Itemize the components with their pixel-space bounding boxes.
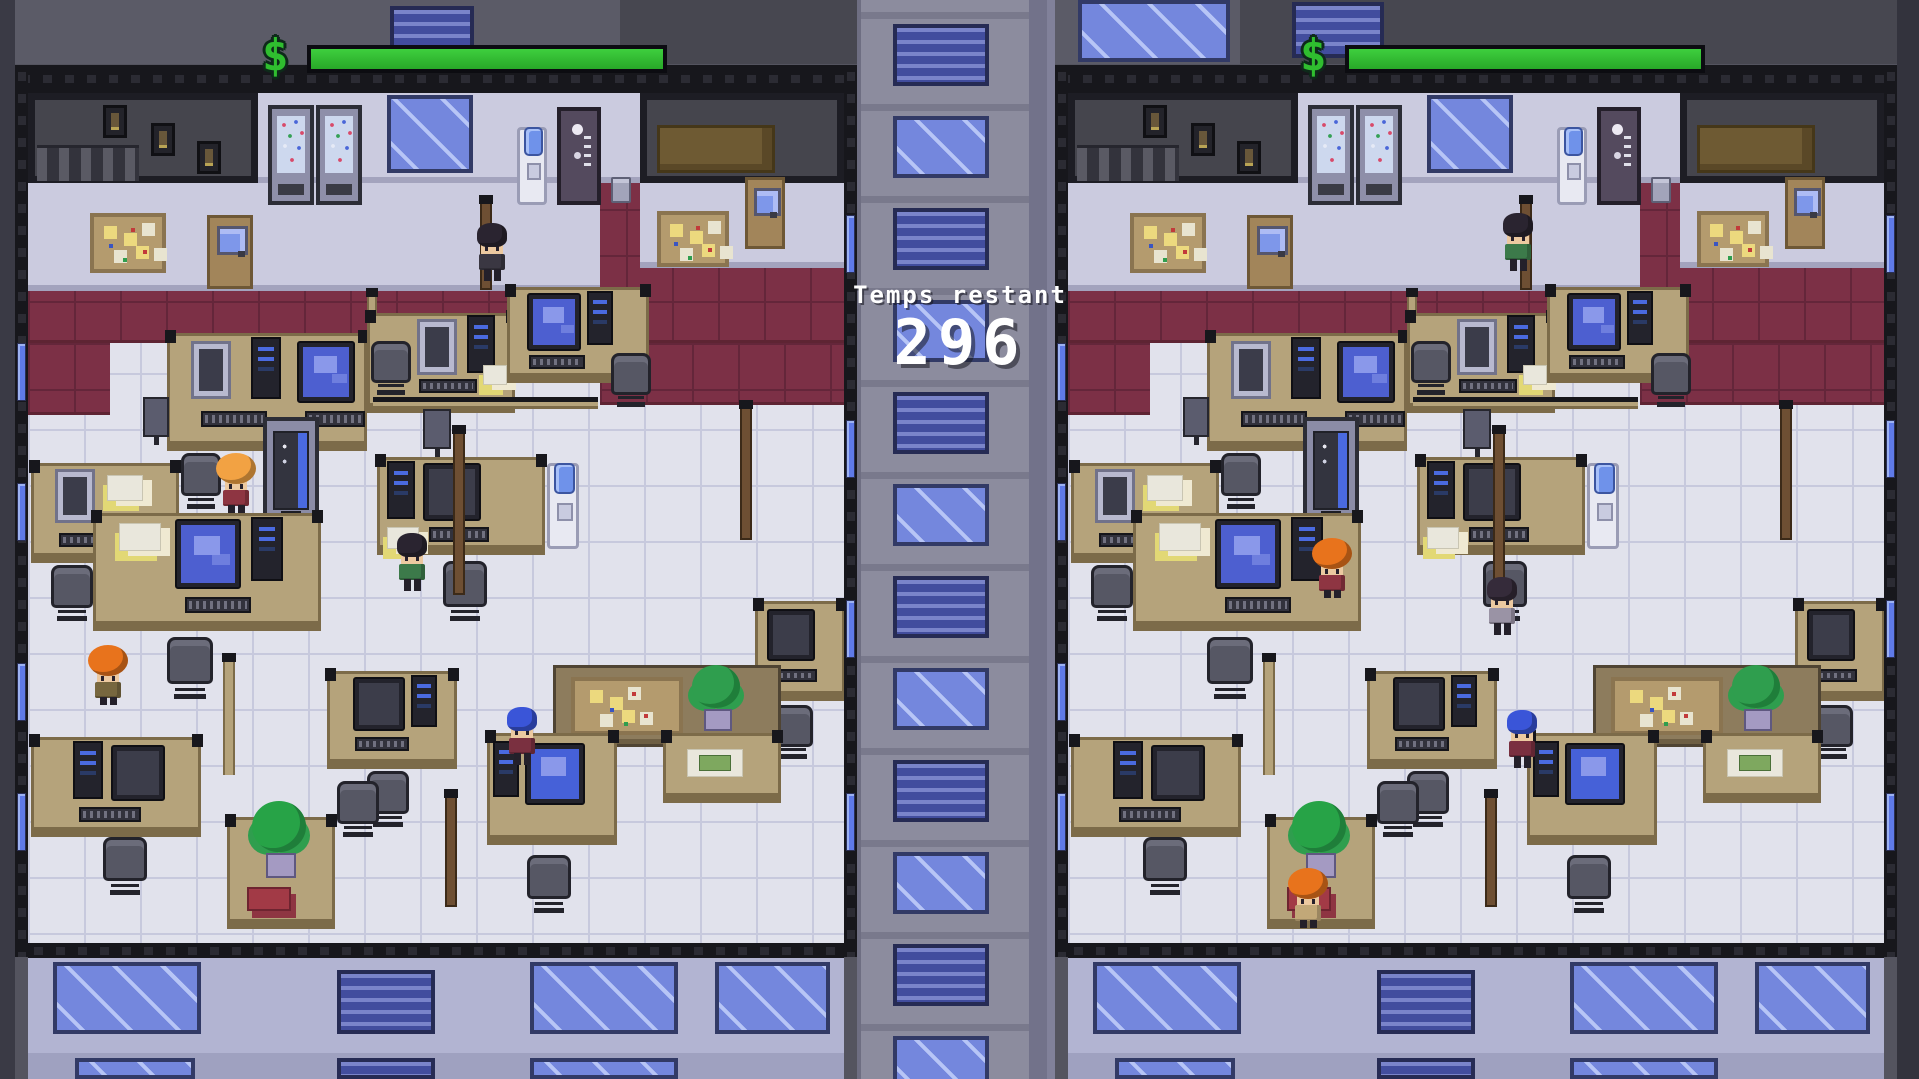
water-cooler[interactable] [517, 127, 547, 205]
cubicle-post [453, 425, 465, 595]
flower-vending-machine[interactable] [1356, 105, 1402, 205]
money-bar-fill [311, 49, 663, 69]
office-chair [103, 837, 147, 897]
office-chair [1221, 453, 1261, 511]
keyboard [1569, 355, 1625, 369]
trash-bin [611, 177, 631, 203]
keyboard [79, 807, 141, 822]
character-body [223, 490, 249, 506]
facade-ledge [857, 12, 1055, 19]
computer-tower [1113, 741, 1143, 799]
trash-bin [1651, 177, 1671, 203]
facade-ledge [857, 932, 1055, 939]
office-chair [1567, 855, 1611, 915]
office-right[interactable] [1055, 65, 1897, 1079]
character-legs [1300, 920, 1307, 928]
cubicle-post [740, 400, 752, 540]
office-chair [1143, 837, 1187, 897]
character-body [1509, 741, 1535, 757]
computer-crt [55, 469, 95, 523]
computer-tower [1291, 337, 1321, 399]
office-left[interactable] [15, 65, 857, 1079]
character-hair [1288, 868, 1328, 899]
money-bar-right [1345, 45, 1705, 73]
wall-window [17, 793, 26, 851]
computer-crt [191, 341, 231, 399]
potted-plant [687, 665, 745, 735]
window [1755, 962, 1870, 1034]
facade-ledge [857, 840, 1055, 847]
cubicle-rail [1263, 655, 1275, 775]
potted-palm [247, 801, 311, 883]
keyboard [185, 597, 251, 613]
character-hair [397, 533, 427, 557]
computer-crt [1095, 469, 1135, 523]
computer-tower [411, 675, 437, 727]
facade-ledge [857, 196, 1055, 203]
computer-monitor [1337, 341, 1395, 403]
keyboard [1119, 807, 1181, 822]
desk-papers [1147, 475, 1183, 501]
window [715, 962, 830, 1034]
water-cooler[interactable] [1587, 463, 1619, 549]
character-hair [1507, 710, 1537, 734]
computer-monitor [1567, 293, 1621, 351]
character-body [1319, 575, 1345, 591]
potted-plant [1727, 665, 1785, 735]
cork-board [1130, 213, 1206, 273]
computer-tower [73, 741, 103, 799]
facade-ledge [857, 1024, 1055, 1031]
character-legs [228, 505, 235, 513]
character-legs [1324, 590, 1331, 598]
desk-papers [1159, 523, 1201, 551]
window [893, 668, 989, 730]
window [1570, 1058, 1718, 1079]
door[interactable] [1247, 215, 1293, 289]
computer-tower [1627, 291, 1653, 345]
character-legs [404, 579, 411, 591]
wall-window [1057, 663, 1066, 721]
character-blue-hair[interactable] [1507, 710, 1537, 768]
computer-tower [387, 461, 415, 519]
wall-window [1886, 420, 1895, 478]
desk-papers [119, 523, 161, 551]
picture-frame [1191, 123, 1215, 156]
flower-vending-machine[interactable] [268, 105, 314, 205]
computer-tower [1427, 461, 1455, 519]
keyboard [419, 379, 477, 393]
storage-shelf [657, 125, 775, 173]
computer-monitor [527, 293, 581, 351]
keyboard [355, 737, 409, 751]
office-chair [1207, 637, 1253, 701]
flower-vending-machine[interactable] [1308, 105, 1354, 205]
character-body [509, 738, 535, 754]
facade-ledge [857, 380, 1055, 387]
office-chair [167, 637, 213, 701]
keyboard [1459, 379, 1517, 393]
computer-monitor [353, 677, 405, 731]
timer-label: Temps restant [760, 281, 1160, 309]
facade-seam [1047, 0, 1055, 1079]
picture-frame [1237, 141, 1261, 174]
keyboard [1395, 737, 1449, 751]
building-divider [857, 0, 1055, 1079]
character-hair [216, 453, 256, 484]
picture-frame [151, 123, 175, 156]
cork-board [90, 213, 166, 273]
cubicle-post [1493, 425, 1505, 595]
cork-board [1697, 211, 1769, 267]
blinds-window [893, 392, 989, 454]
wall-window [1057, 483, 1066, 541]
computer-crt [417, 319, 457, 375]
window [893, 852, 989, 914]
timer-value: 296 [760, 306, 1160, 379]
blinds-window [337, 1058, 435, 1079]
character-body [95, 682, 121, 698]
wall-window [846, 793, 855, 851]
computer-tower [1451, 675, 1477, 727]
window [1078, 0, 1230, 62]
character-legs [100, 697, 107, 705]
window [75, 1058, 195, 1079]
desk-papers [1727, 749, 1783, 777]
character-legs [514, 753, 521, 765]
cork-board [571, 677, 683, 735]
storage-shelf [1697, 125, 1815, 173]
office-chair [1411, 341, 1451, 397]
wall-window [1886, 600, 1895, 658]
computer-tower [587, 291, 613, 345]
wall-window [17, 483, 26, 541]
computer-crt [1231, 341, 1271, 399]
cubicle-rail [223, 655, 235, 775]
desk-papers [1523, 365, 1547, 385]
keyboard [529, 355, 585, 369]
computer-monitor [297, 341, 355, 403]
door[interactable] [1785, 177, 1825, 249]
cubicle-post [1780, 400, 1792, 540]
facade-ledge [857, 472, 1055, 479]
facade-ledge [857, 748, 1055, 755]
computer-monitor [423, 463, 481, 521]
blinds-window [893, 576, 989, 638]
money-icon-right: $ [1300, 34, 1327, 78]
wall-window [846, 420, 855, 478]
cubicle-post [445, 789, 457, 907]
wall-window [1057, 793, 1066, 851]
office-chair [181, 453, 221, 511]
character-hair [477, 223, 507, 247]
window [53, 962, 201, 1034]
red-binder [247, 887, 291, 911]
steel-beam [1068, 943, 1884, 958]
cubicle-rail [373, 397, 598, 409]
cork-board [657, 211, 729, 267]
facade-ledge [857, 104, 1055, 111]
blinds-window [1377, 970, 1475, 1034]
character-orange-left[interactable] [93, 645, 123, 703]
blinds-window [893, 208, 989, 270]
wall-window [846, 215, 855, 273]
computer-tower [251, 337, 281, 399]
office-chair [527, 855, 571, 915]
character-hair [1312, 538, 1352, 569]
cork-board [1611, 677, 1723, 735]
water-cooler[interactable] [1557, 127, 1587, 205]
steel-beam [28, 943, 844, 958]
character-hair [1503, 213, 1533, 237]
picture-frame [103, 105, 127, 138]
character-blue-hair[interactable] [507, 707, 537, 765]
computer-monitor [1215, 519, 1281, 589]
computer-monitor [1393, 677, 1445, 731]
picture-frame [1143, 105, 1167, 138]
cubicle-post [1485, 789, 1497, 907]
wall-window [846, 600, 855, 658]
money-bar-left [307, 45, 667, 73]
character-legs [484, 269, 491, 281]
window [530, 962, 678, 1034]
blinds-window [893, 760, 989, 822]
desk-monitor [1463, 409, 1491, 449]
character-hair [88, 645, 128, 676]
blinds-window [337, 970, 435, 1034]
stairs [37, 145, 139, 181]
money-icon-left: $ [262, 34, 289, 78]
game-scene[interactable]: $ $ Temps restant 296 [0, 0, 1919, 1079]
desk-papers [107, 475, 143, 501]
character-body [1505, 244, 1531, 260]
window [1115, 1058, 1235, 1079]
character-body [399, 564, 425, 580]
desk-papers [483, 365, 507, 385]
wall-window [17, 343, 26, 401]
desk-monitor [423, 409, 451, 449]
cubicle-rail [1413, 397, 1638, 409]
computer-monitor [1463, 463, 1521, 521]
office-chair [443, 561, 487, 623]
window [387, 95, 473, 173]
facade-seam [857, 0, 861, 1079]
office-chair [1651, 353, 1691, 409]
wall-window [1886, 215, 1895, 273]
office-chair [611, 353, 651, 409]
computer-monitor [175, 519, 241, 589]
keyboard [1225, 597, 1291, 613]
character-blond[interactable] [221, 453, 251, 511]
office-chair [51, 565, 93, 623]
facade-seam [1029, 0, 1047, 1079]
character-hair [1487, 577, 1517, 601]
flower-vending-machine[interactable] [316, 105, 362, 205]
character-legs [1510, 259, 1517, 271]
character-body [479, 254, 505, 270]
computer-monitor [1807, 609, 1855, 661]
window [893, 484, 989, 546]
office-chair [1091, 565, 1133, 623]
desk-papers [1427, 527, 1459, 549]
character-orange-vending[interactable] [1317, 538, 1347, 596]
coffee-machine[interactable] [557, 107, 601, 205]
computer-tower [251, 517, 283, 581]
character-green-shirt[interactable] [1503, 213, 1533, 271]
facade-ledge [857, 564, 1055, 571]
character-body [1295, 905, 1321, 921]
window [1570, 962, 1718, 1034]
character-dark-desk[interactable] [1487, 577, 1517, 635]
character-legs [1514, 756, 1521, 768]
computer-monitor [111, 745, 165, 801]
door[interactable] [745, 177, 785, 249]
character-body [1489, 608, 1515, 624]
character-hair [507, 707, 537, 731]
facade-ledge [857, 656, 1055, 663]
window [1427, 95, 1513, 173]
window [530, 1058, 678, 1079]
water-cooler[interactable] [547, 463, 579, 549]
character-green-shirt[interactable] [397, 533, 427, 591]
blinds-window [893, 944, 989, 1006]
blinds-window [1377, 1058, 1475, 1079]
keyboard [1241, 411, 1307, 427]
carpet-floor [28, 343, 110, 415]
desk-papers [687, 749, 743, 777]
character-legs [1494, 623, 1501, 635]
stairs [1077, 145, 1179, 181]
keyboard [201, 411, 267, 427]
character-orange-plant[interactable] [1293, 868, 1323, 926]
wall-window [17, 663, 26, 721]
background-wall [1897, 0, 1919, 1079]
window [1093, 962, 1241, 1034]
desk-monitor [143, 397, 169, 437]
picture-frame [197, 141, 221, 174]
money-bar-fill [1349, 49, 1701, 69]
door[interactable] [207, 215, 253, 289]
computer-monitor [1151, 745, 1205, 801]
window [893, 116, 989, 178]
window [893, 1036, 989, 1079]
blinds-window [893, 24, 989, 86]
coffee-machine[interactable] [1597, 107, 1641, 205]
computer-crt [1457, 319, 1497, 375]
character-dark-suit[interactable] [477, 223, 507, 281]
computer-monitor [1565, 743, 1625, 805]
office-chair [371, 341, 411, 397]
computer-monitor [767, 609, 815, 661]
office-chair [337, 781, 379, 839]
desk-monitor [1183, 397, 1209, 437]
wall-window [1886, 793, 1895, 851]
background-wall [0, 0, 15, 1079]
office-chair [1377, 781, 1419, 839]
